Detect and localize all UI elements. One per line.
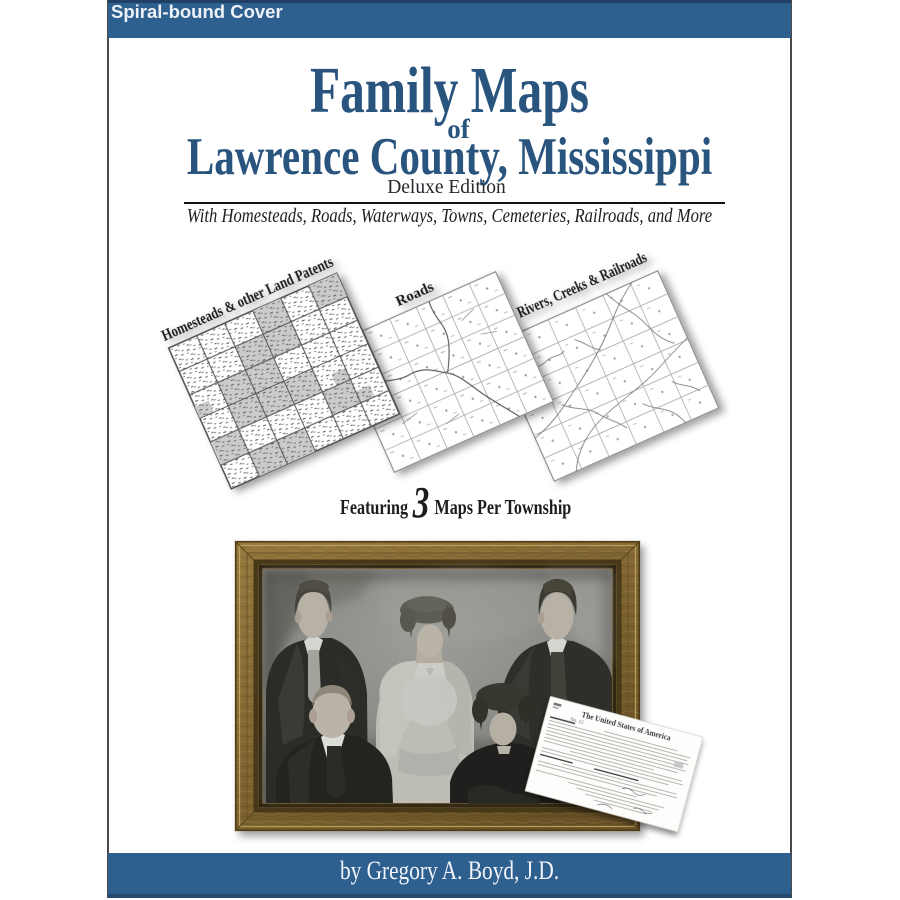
svg-text:3: 3 — [412, 479, 429, 528]
svg-text:Featuring: Featuring — [340, 496, 408, 520]
svg-text:Maps Per Township: Maps Per Township — [435, 496, 572, 520]
